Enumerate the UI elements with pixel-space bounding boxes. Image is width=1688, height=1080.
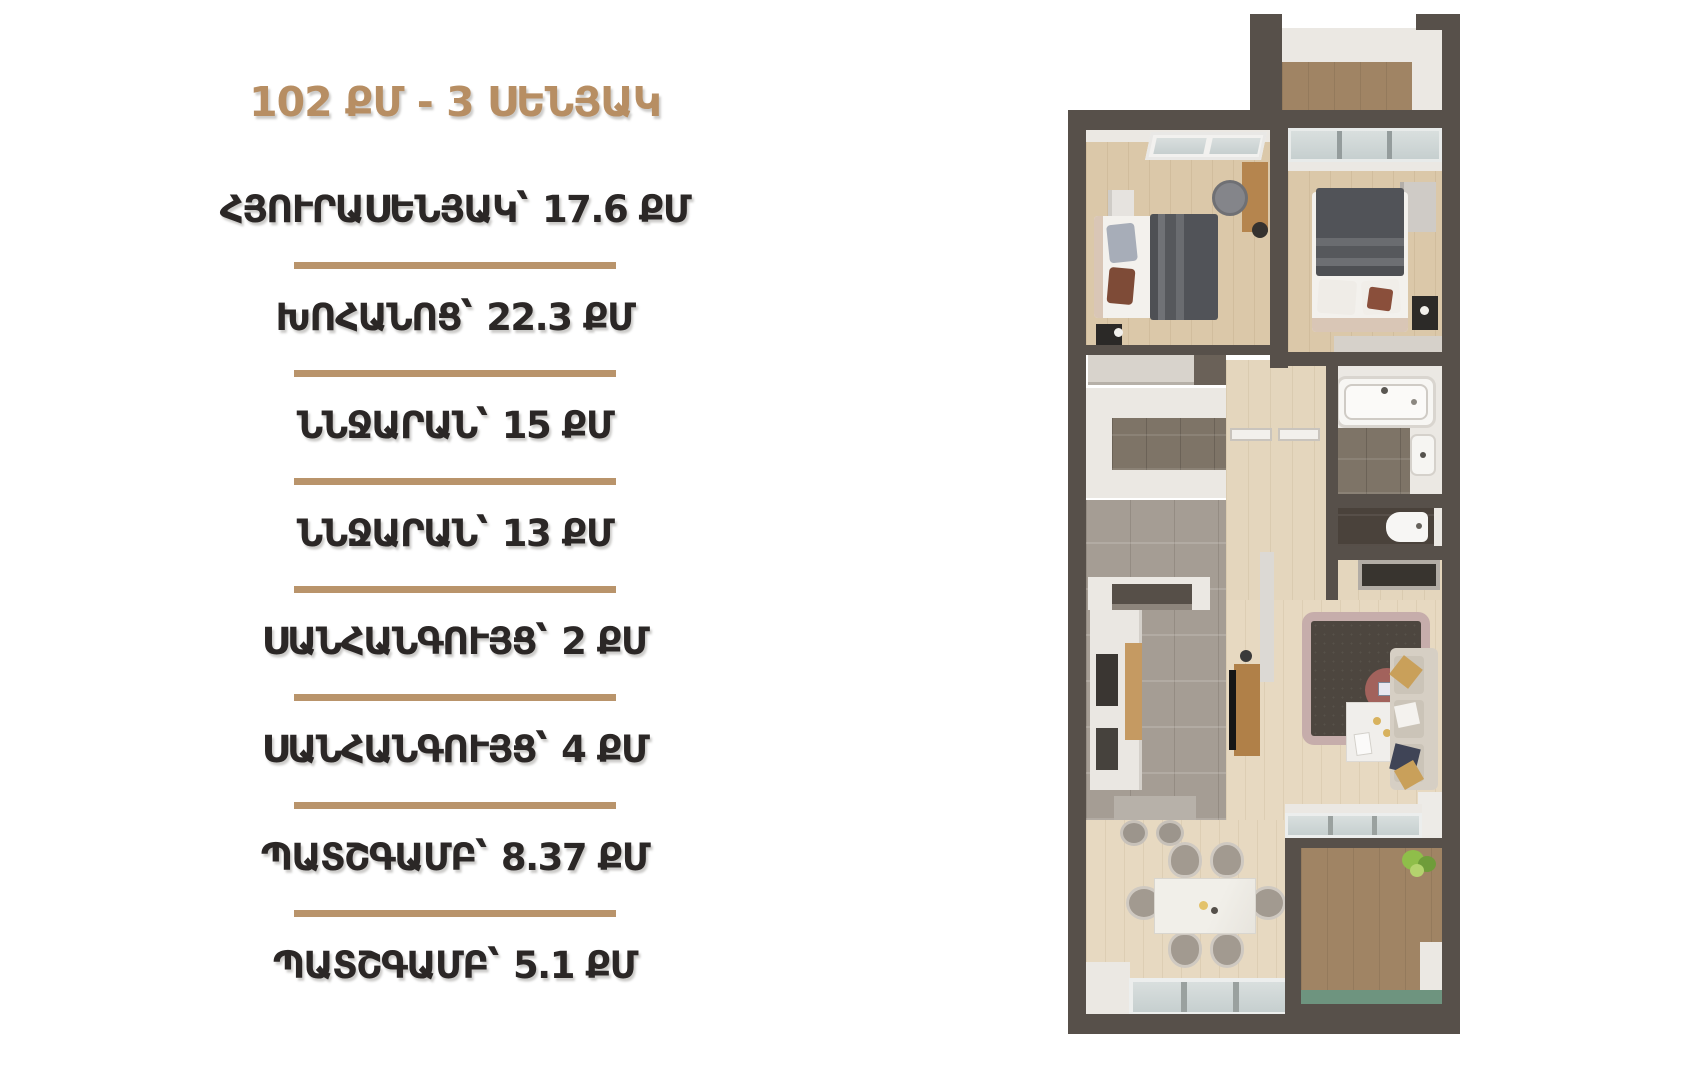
divider-line xyxy=(294,478,616,485)
divider-line xyxy=(294,694,616,701)
tv-screen xyxy=(1229,670,1236,750)
pillow xyxy=(1106,223,1138,264)
wall-bedroom-2-bottom xyxy=(1288,352,1442,366)
window-frame-divider xyxy=(1328,816,1333,835)
room-row-balcony-2: ՊԱՏՇԳԱՄԲ՝ 5.1 ՔՄ xyxy=(205,944,705,992)
bed-2 xyxy=(1312,192,1408,332)
balcony-ledge xyxy=(1420,942,1442,990)
room-name: ՊԱՏՇԳԱՄԲ՝ xyxy=(273,944,498,987)
tv-console xyxy=(1358,560,1440,590)
room-area: 17.6 ՔՄ xyxy=(542,188,690,231)
cup xyxy=(1373,717,1381,725)
floor-plan-sheet: 102 ՔՄ - 3 ՍԵՆՅԱԿ ՀՅՈՒՐԱՍԵՆՅԱԿ՝ 17.6 ՔՄ … xyxy=(0,0,1688,1080)
divider-line xyxy=(294,586,616,593)
kitchen-living-divider xyxy=(1260,552,1274,682)
pillow xyxy=(1317,279,1357,316)
window-frame-divider xyxy=(1387,131,1392,159)
wall-balcony-bottom-top xyxy=(1301,838,1442,848)
tv-stand xyxy=(1234,664,1260,756)
room-row-living: ՀՅՈՒՐԱՍԵՆՅԱԿ՝ 17.6 ՔՄ xyxy=(205,188,705,236)
floor-plan xyxy=(1068,14,1460,1036)
window-ledge xyxy=(1086,962,1130,1016)
balcony-top-side-wall xyxy=(1412,30,1442,110)
room-name: ՀՅՈՒՐԱՍԵՆՅԱԿ՝ xyxy=(220,188,527,231)
room-area: 5.1 ՔՄ xyxy=(513,944,637,987)
room-name: ԽՈՀԱՆՈՑ՝ xyxy=(275,296,471,339)
bathtub xyxy=(1336,376,1436,428)
pillow xyxy=(1106,267,1135,305)
wall-bottom-left xyxy=(1068,1014,1301,1034)
bed-headboard xyxy=(1312,318,1408,332)
kitchen-appliance xyxy=(1096,728,1118,770)
kitchen-appliance xyxy=(1096,654,1118,706)
room-name: ՆՆՋԱՐԱՆ՝ xyxy=(297,512,487,555)
wall-balcony-top-corner xyxy=(1416,14,1460,30)
sink-drain xyxy=(1420,452,1426,458)
door-threshold xyxy=(1278,428,1320,441)
balcony-top-floor xyxy=(1282,62,1412,110)
room-row-bedroom-1: ՆՆՋԱՐԱՆ՝ 15 ՔՄ xyxy=(205,404,705,452)
wall-left xyxy=(1068,110,1086,1020)
divider-line xyxy=(294,910,616,917)
wall-under-balcony-top xyxy=(1282,110,1442,128)
lamp xyxy=(1114,328,1123,337)
dining-window xyxy=(1129,978,1289,1016)
bed-blanket xyxy=(1150,214,1218,320)
door-threshold xyxy=(1230,428,1272,441)
window-frame-divider xyxy=(1372,816,1377,835)
divider-line xyxy=(294,262,616,269)
room-name: ՆՆՋԱՐԱՆ՝ xyxy=(297,404,487,447)
pillow xyxy=(1394,702,1420,728)
page-title: 102 ՔՄ - 3 ՍԵՆՅԱԿ xyxy=(205,78,705,126)
wall-balcony-top-left xyxy=(1250,14,1282,130)
dining-chair xyxy=(1210,842,1244,878)
bathtub-faucet xyxy=(1381,387,1388,394)
plant xyxy=(1410,864,1424,877)
kitchen-counter-wood xyxy=(1125,643,1142,740)
dining-chair xyxy=(1210,932,1244,968)
room-area: 13 ՔՄ xyxy=(502,512,614,555)
dining-table xyxy=(1154,878,1256,934)
wall-right xyxy=(1442,14,1460,1034)
bed-blanket xyxy=(1316,188,1404,276)
bedroom-1-window xyxy=(1145,132,1267,160)
room-name: ՊԱՏՇԳԱՄԲ՝ xyxy=(261,836,486,879)
room-areas-panel: 102 ՔՄ - 3 ՍԵՆՅԱԿ ՀՅՈՒՐԱՍԵՆՅԱԿ՝ 17.6 ՔՄ … xyxy=(205,78,705,992)
toilet xyxy=(1386,512,1428,542)
bathroom-small-floor xyxy=(1112,418,1226,470)
room-row-balcony-1: ՊԱՏՇԳԱՄԲ՝ 8.37 ՔՄ xyxy=(205,836,705,884)
stool xyxy=(1252,222,1268,238)
desk-chair xyxy=(1212,180,1248,216)
room-row-bathroom-2: ՍԱՆՀԱՆԳՈՒՅՑ՝ 4 ՔՄ xyxy=(205,728,705,776)
bed-1 xyxy=(1094,216,1218,318)
window-frame-divider xyxy=(1181,982,1187,1012)
balcony-green-strip xyxy=(1301,990,1442,1004)
lamp xyxy=(1420,306,1429,315)
room-name: ՍԱՆՀԱՆԳՈՒՅՑ՝ xyxy=(262,728,546,771)
wall-bathroom-left xyxy=(1326,366,1338,600)
window-frame-divider xyxy=(1337,131,1342,159)
sofa xyxy=(1390,648,1438,790)
wall-bedrooms-divider xyxy=(1270,128,1288,368)
window-glass xyxy=(1153,138,1206,154)
bathroom-main-floor xyxy=(1332,428,1410,494)
wall-toilet-bottom xyxy=(1330,546,1442,560)
wall-bedroom-1-bottom xyxy=(1086,345,1270,355)
window-frame-divider xyxy=(1233,982,1239,1012)
bathroom-sink xyxy=(1410,434,1436,476)
room-list: ՀՅՈՒՐԱՍԵՆՅԱԿ՝ 17.6 ՔՄ ԽՈՀԱՆՈՑ՝ 22.3 ՔՄ Ն… xyxy=(205,188,705,992)
living-balcony-window xyxy=(1285,813,1422,838)
bedroom-2-window xyxy=(1288,128,1442,162)
bathtub-drain xyxy=(1411,399,1417,405)
divider-line xyxy=(294,802,616,809)
room-row-bathroom-1: ՍԱՆՀԱՆԳՈՒՅՑ՝ 2 ՔՄ xyxy=(205,620,705,668)
dining-chair xyxy=(1168,932,1202,968)
wall-balcony-bottom-bottom xyxy=(1285,1004,1460,1034)
toilet-flush-button xyxy=(1416,523,1422,529)
room-area: 22.3 ՔՄ xyxy=(486,296,634,339)
window-sill xyxy=(1285,804,1422,813)
table-centerpiece xyxy=(1211,907,1218,914)
bed-headboard xyxy=(1094,216,1103,318)
pillow xyxy=(1367,286,1394,311)
kitchen-island-counter xyxy=(1114,796,1196,820)
window-glass xyxy=(1209,138,1260,154)
wall-niche xyxy=(1112,584,1192,610)
bedroom-2-window-sill xyxy=(1288,162,1442,171)
wall-bathroom-divider xyxy=(1326,494,1442,508)
bar-stool xyxy=(1120,820,1148,846)
room-area: 15 ՔՄ xyxy=(502,404,614,447)
speaker xyxy=(1240,650,1252,662)
room-area: 4 ՔՄ xyxy=(561,728,648,771)
room-row-kitchen: ԽՈՀԱՆՈՑ՝ 22.3 ՔՄ xyxy=(205,296,705,344)
room-row-bedroom-2: ՆՆՋԱՐԱՆ՝ 13 ՔՄ xyxy=(205,512,705,560)
room-area: 2 ՔՄ xyxy=(561,620,648,663)
table-centerpiece xyxy=(1199,901,1208,910)
room-name: ՍԱՆՀԱՆԳՈՒՅՑ՝ xyxy=(262,620,546,663)
wardrobe-1-dark-section xyxy=(1194,355,1226,385)
magazine xyxy=(1354,732,1373,756)
dining-chair xyxy=(1168,842,1202,878)
room-area: 8.37 ՔՄ xyxy=(501,836,649,879)
divider-line xyxy=(294,370,616,377)
